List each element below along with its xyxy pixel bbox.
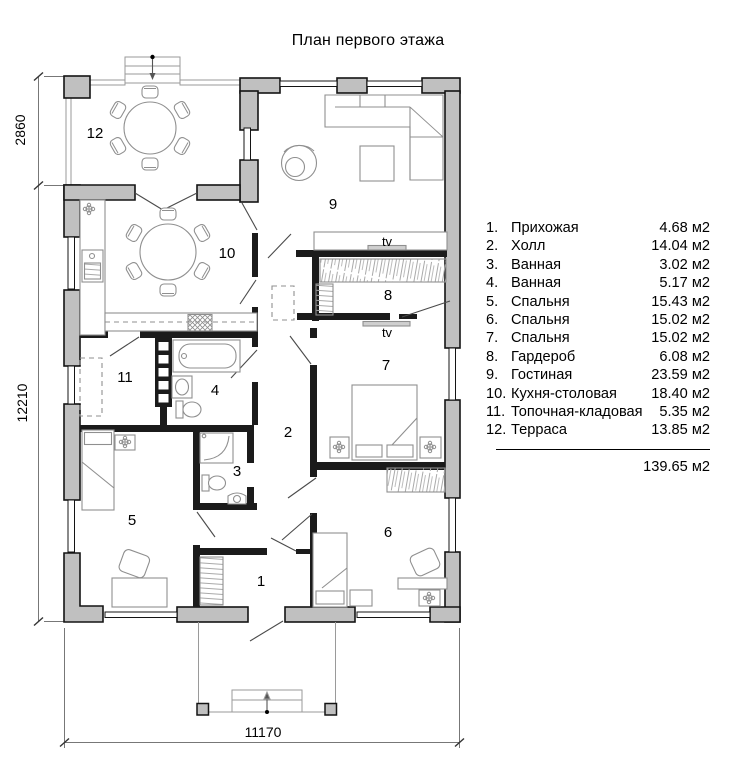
room-label-9: 9: [329, 196, 337, 213]
room-label-1: 1: [257, 573, 265, 590]
room-label-8: 8: [384, 287, 392, 304]
room-label-12: 12: [87, 125, 104, 142]
armchair: [282, 145, 317, 180]
tv-label-bottom: tv: [382, 325, 393, 340]
room-label-7: 7: [382, 357, 390, 374]
floor-plan-page: План первого этажа: [0, 0, 736, 771]
nightstand: [350, 590, 372, 606]
bed-5: [82, 430, 114, 510]
bed-6: [313, 533, 347, 607]
dim-house-height: 12210: [14, 383, 30, 422]
closet-1: [200, 557, 223, 605]
legend-item: 2.Холл14.04 м2: [486, 237, 710, 255]
toilet-4: [176, 401, 201, 418]
wardrobe-8: [316, 259, 446, 315]
cooktop: [188, 315, 212, 332]
room-label-5: 5: [128, 512, 136, 529]
dim-terrace-height: 2860: [12, 114, 28, 145]
coffee-table: [360, 146, 394, 181]
kitchen-dining-set: [125, 208, 211, 296]
desk-6: [398, 578, 447, 589]
legend-item: 11.Топочная-кладовая5.35 м2: [486, 403, 710, 421]
bed-7: [352, 385, 417, 460]
storage-dashed-area: [80, 358, 102, 416]
entrance-porch: [197, 622, 337, 715]
legend-item: 3.Ванная3.02 м2: [486, 256, 710, 274]
legend-item: 10.Кухня-столовая18.40 м2: [486, 385, 710, 403]
legend-item: 12.Терраса13.85 м2: [486, 421, 710, 439]
room-legend: 1.Прихожая4.68 м2 2.Холл14.04 м2 3.Ванна…: [486, 219, 710, 476]
desk-5: [112, 578, 167, 607]
room-label-6: 6: [384, 524, 392, 541]
dim-house-width: 11170: [245, 724, 282, 740]
legend-divider: [496, 449, 710, 450]
legend-item: 1.Прихожая4.68 м2: [486, 219, 710, 237]
exterior-walls: [64, 76, 460, 622]
legend-item: 5.Спальня15.43 м2: [486, 293, 710, 311]
hall-dashed-area: [272, 286, 294, 320]
chair-5: [118, 548, 151, 579]
legend-item: 8.Гардероб6.08 м2: [486, 348, 710, 366]
room-label-4: 4: [211, 382, 219, 399]
windows: [68, 81, 456, 618]
chair-6: [409, 547, 442, 578]
room-label-10: 10: [219, 245, 236, 262]
bathtub: [173, 340, 240, 372]
shower-3: [200, 433, 233, 463]
room-label-2: 2: [284, 424, 292, 441]
room-label-3: 3: [233, 463, 241, 480]
legend-item: 9.Гостиная23.59 м2: [486, 366, 710, 384]
sink-3: [228, 493, 246, 504]
tv-label-top: tv: [382, 234, 393, 249]
room-label-11: 11: [117, 369, 133, 386]
toilet-3: [202, 475, 226, 491]
legend-item: 4.Ванная5.17 м2: [486, 274, 710, 292]
legend-item: 7.Спальня15.02 м2: [486, 329, 710, 347]
sink-4: [172, 376, 192, 398]
legend-total: 139.65 м2: [486, 458, 710, 476]
wardrobe-6: [387, 468, 445, 492]
legend-item: 6.Спальня15.02 м2: [486, 311, 710, 329]
terrace-dining-set: [109, 86, 191, 170]
tv-unit-living: [314, 232, 447, 250]
